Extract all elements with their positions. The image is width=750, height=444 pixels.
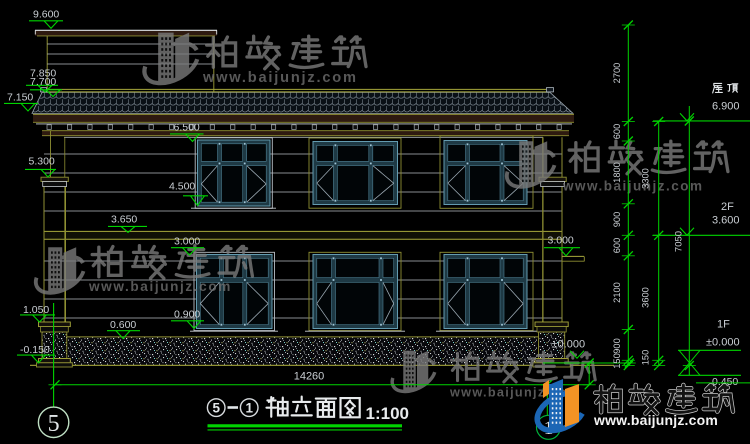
- svg-text:900: 900: [612, 338, 622, 354]
- svg-text:1: 1: [245, 400, 253, 415]
- svg-text:900: 900: [612, 212, 622, 228]
- svg-text:3.000: 3.000: [548, 235, 574, 247]
- svg-text:www.baijunjz.com: www.baijunjz.com: [593, 412, 718, 428]
- svg-text:5.300: 5.300: [29, 156, 55, 168]
- svg-text:7050: 7050: [674, 231, 685, 252]
- svg-text:2100: 2100: [612, 282, 622, 303]
- svg-text:3.000: 3.000: [174, 236, 200, 248]
- svg-text:1:100: 1:100: [366, 404, 409, 423]
- svg-text:150: 150: [612, 353, 622, 369]
- svg-text:6.500: 6.500: [174, 122, 200, 134]
- svg-text:4.500: 4.500: [169, 181, 195, 193]
- svg-text:150: 150: [641, 350, 651, 366]
- svg-text:3300: 3300: [641, 168, 651, 189]
- svg-text:600: 600: [612, 124, 622, 140]
- svg-text:7.150: 7.150: [7, 92, 33, 104]
- svg-text:0.900: 0.900: [174, 309, 200, 321]
- svg-text:www.baijunjz.com: www.baijunjz.com: [88, 279, 232, 294]
- svg-text:±0.000: ±0.000: [552, 339, 586, 351]
- svg-text:3600: 3600: [641, 287, 651, 308]
- svg-text:3.600: 3.600: [712, 215, 740, 227]
- svg-text:±0.000: ±0.000: [706, 337, 740, 349]
- svg-text:1F: 1F: [717, 319, 730, 331]
- svg-text:2F: 2F: [721, 201, 734, 213]
- svg-text:14260: 14260: [294, 370, 325, 382]
- svg-text:5: 5: [48, 411, 60, 437]
- svg-text:6.900: 6.900: [712, 101, 740, 113]
- svg-text:9.600: 9.600: [33, 9, 59, 21]
- svg-text:www.baijunjz.com: www.baijunjz.com: [202, 70, 358, 86]
- svg-text:0.600: 0.600: [110, 319, 136, 331]
- svg-text:7.700: 7.700: [30, 76, 56, 88]
- svg-text:-0.150: -0.150: [20, 344, 50, 356]
- svg-text:1800: 1800: [612, 162, 622, 183]
- svg-text:www.baijunjz.com: www.baijunjz.com: [562, 179, 704, 194]
- svg-text:3.650: 3.650: [111, 214, 137, 226]
- svg-text:600: 600: [612, 238, 622, 254]
- svg-text:2700: 2700: [612, 63, 622, 84]
- svg-text:1.050: 1.050: [23, 304, 49, 316]
- svg-text:5: 5: [212, 400, 220, 415]
